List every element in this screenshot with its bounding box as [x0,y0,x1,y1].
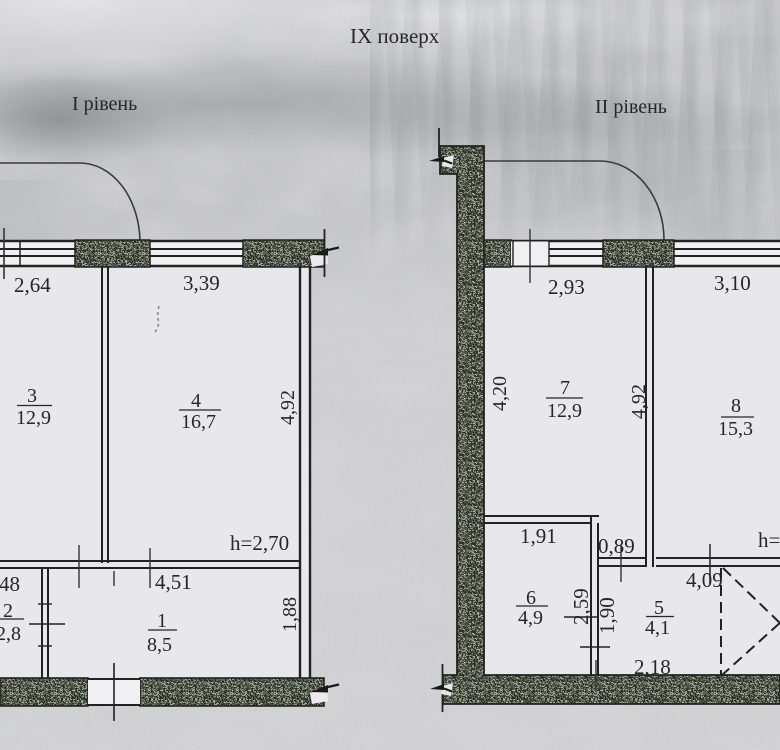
svg-text:7: 7 [560,377,570,399]
svg-text:16,7: 16,7 [181,411,216,433]
svg-text:1,90: 1,90 [595,597,619,634]
svg-text:3,10: 3,10 [714,271,751,295]
svg-text:1: 1 [157,610,167,632]
svg-text:4,1: 4,1 [645,617,670,639]
svg-text:4,51: 4,51 [155,570,192,594]
svg-text:15,3: 15,3 [718,418,753,440]
svg-text:0,89: 0,89 [598,534,635,558]
svg-text:8: 8 [731,395,741,417]
svg-text:4: 4 [191,390,201,412]
svg-text:5: 5 [654,597,664,619]
svg-text:48: 48 [0,572,20,596]
svg-text:2,18: 2,18 [634,655,671,679]
svg-text:ІІ рівень: ІІ рівень [595,96,667,118]
svg-text:12,9: 12,9 [16,407,51,429]
svg-text:3: 3 [27,385,37,407]
svg-text:h=2,70: h=2,70 [230,531,289,555]
svg-text:1,88: 1,88 [279,597,301,632]
svg-text:4,20: 4,20 [489,376,511,411]
svg-text:h=2: h=2 [758,528,780,552]
svg-text:8,5: 8,5 [147,634,172,656]
svg-text:12,9: 12,9 [547,400,582,422]
svg-text:2,93: 2,93 [548,275,585,299]
svg-text:4,09: 4,09 [686,568,723,592]
svg-text:2,8: 2,8 [0,623,21,645]
svg-text:4,92: 4,92 [628,384,650,419]
svg-text:4,92: 4,92 [277,390,299,425]
svg-text:3,39: 3,39 [183,271,220,295]
svg-text:IX поверх: IX поверх [350,24,440,48]
svg-text:І рівень: І рівень [72,93,137,115]
svg-text:4,9: 4,9 [518,607,543,629]
svg-text:2,59: 2,59 [569,588,593,625]
svg-text:1,91: 1,91 [520,524,557,548]
svg-text:2,64: 2,64 [14,273,51,297]
